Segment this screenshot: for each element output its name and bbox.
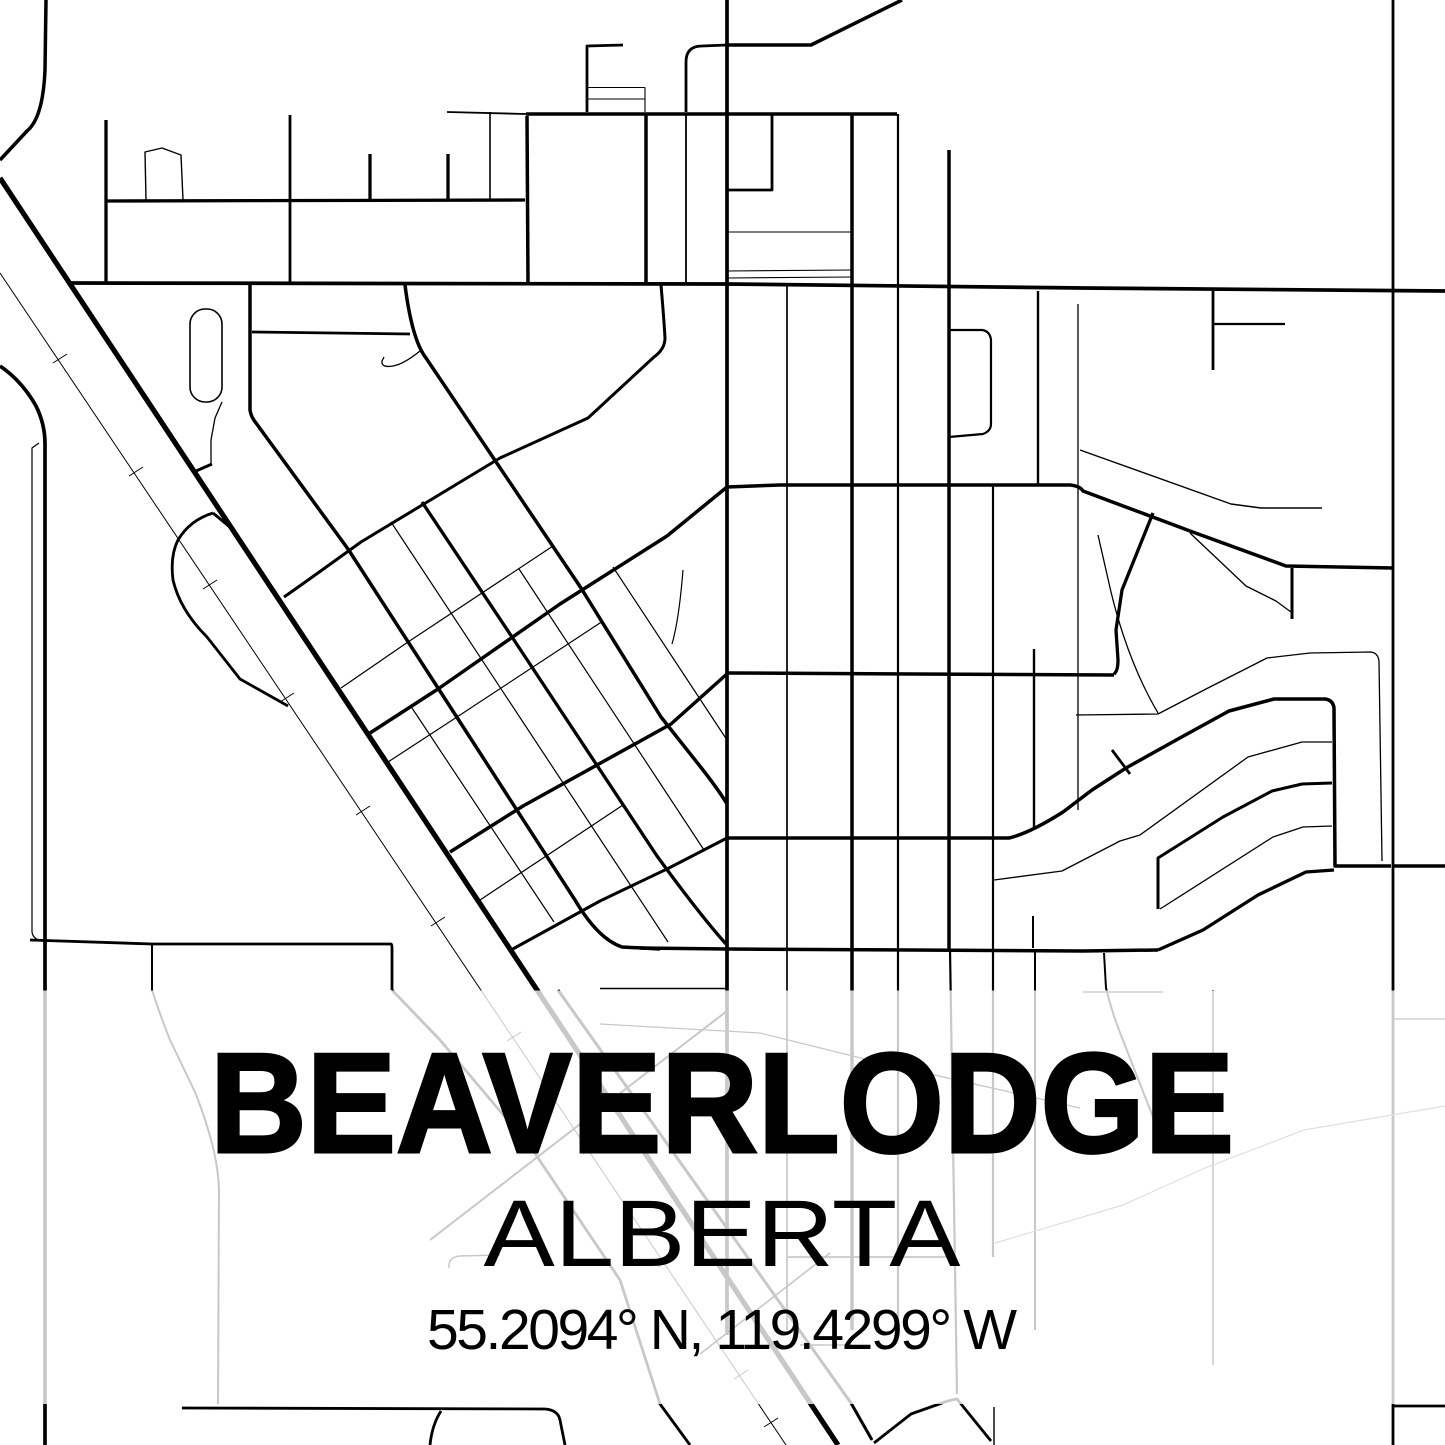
svg-text:55.2094° N, 119.4299° W: 55.2094° N, 119.4299° W	[427, 1298, 1017, 1362]
svg-text:BEAVERLODGE: BEAVERLODGE	[210, 1024, 1234, 1183]
svg-text:ALBERTA: ALBERTA	[484, 1181, 962, 1287]
